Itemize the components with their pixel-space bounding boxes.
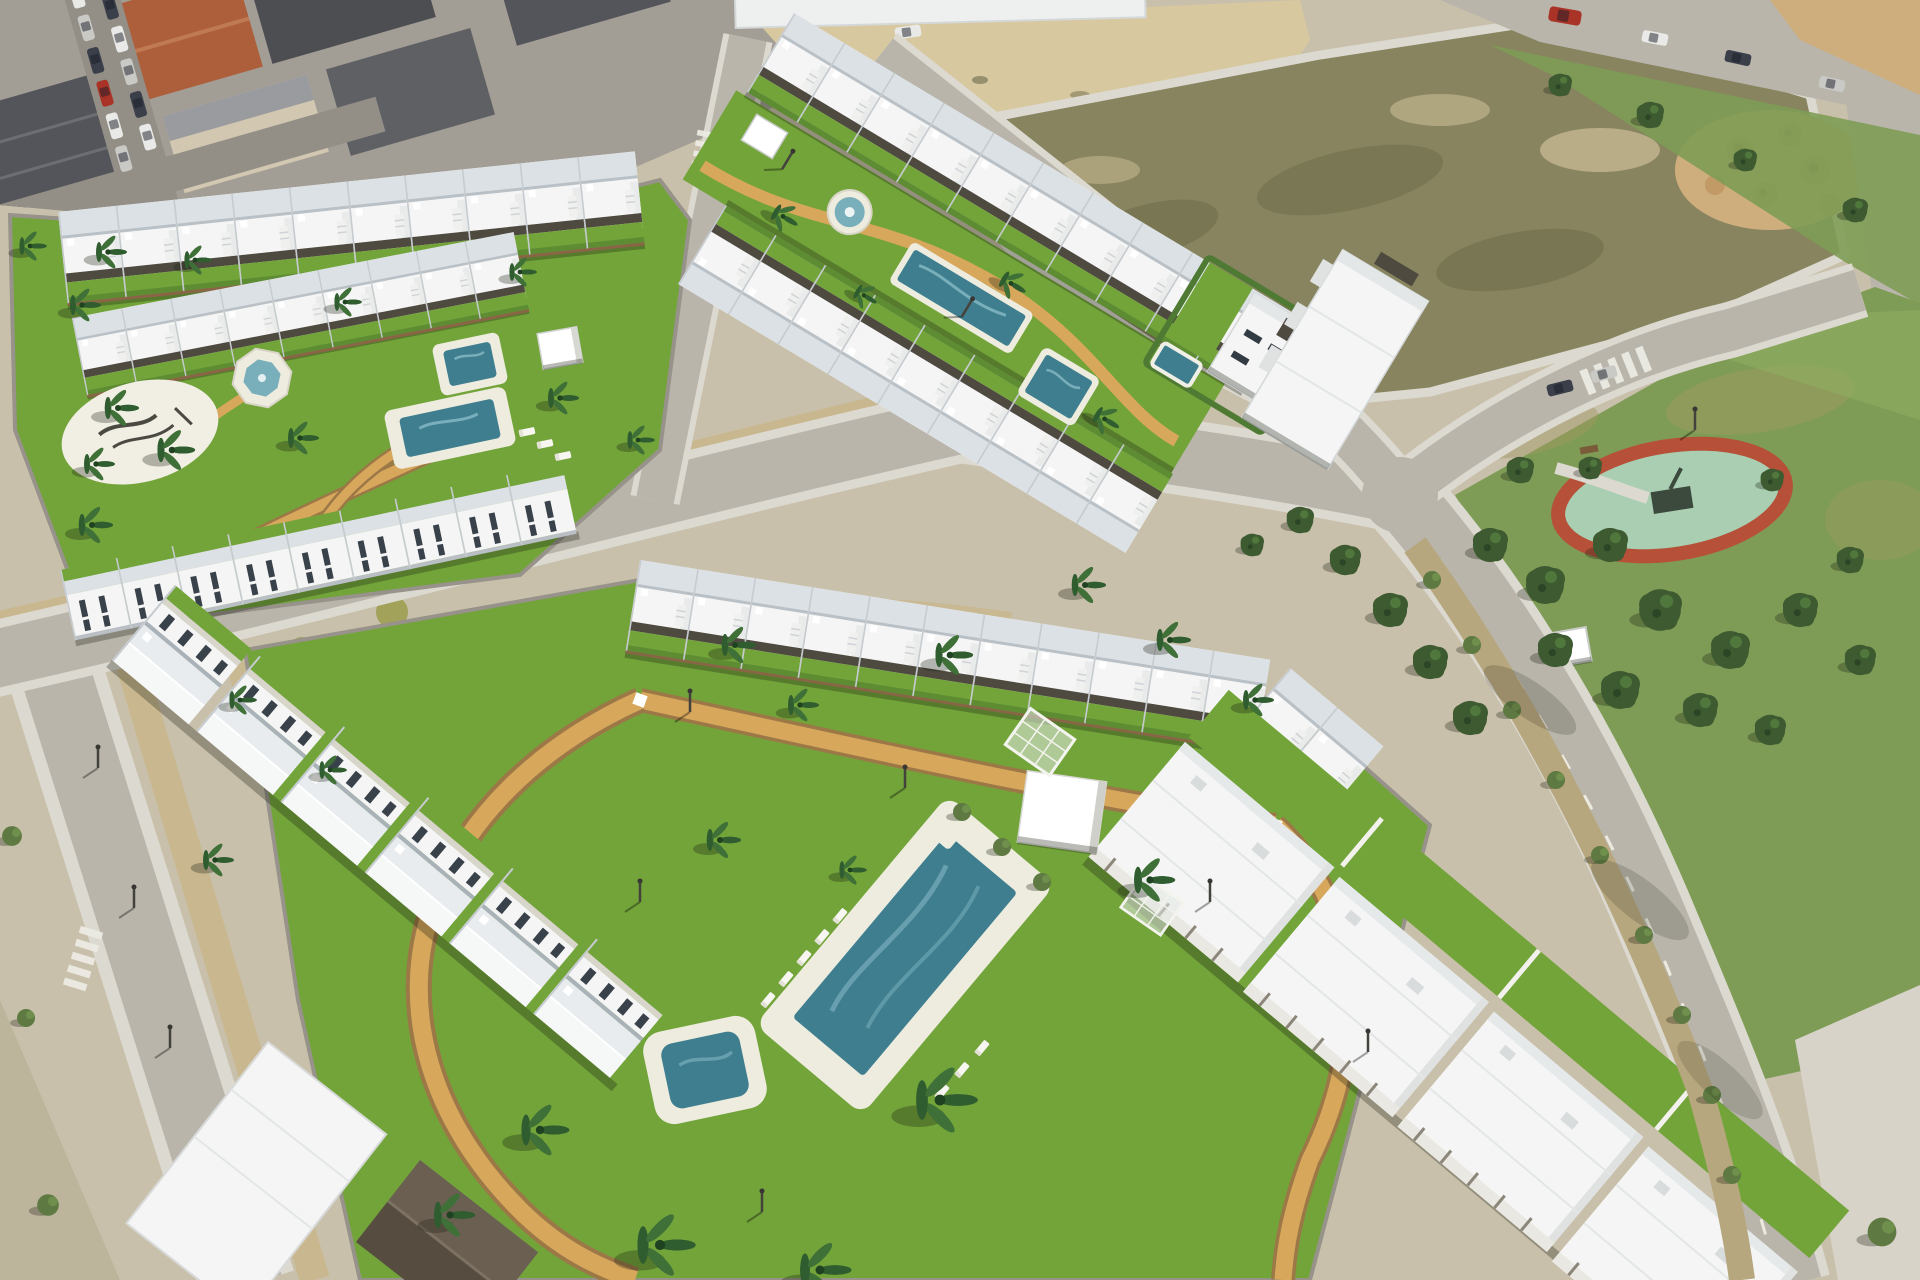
aerial-development-render: Existing town streets with parked cars (0, 0, 1920, 1280)
pool-kiosk-cube (1017, 771, 1107, 855)
pool-kiosk (537, 327, 583, 370)
